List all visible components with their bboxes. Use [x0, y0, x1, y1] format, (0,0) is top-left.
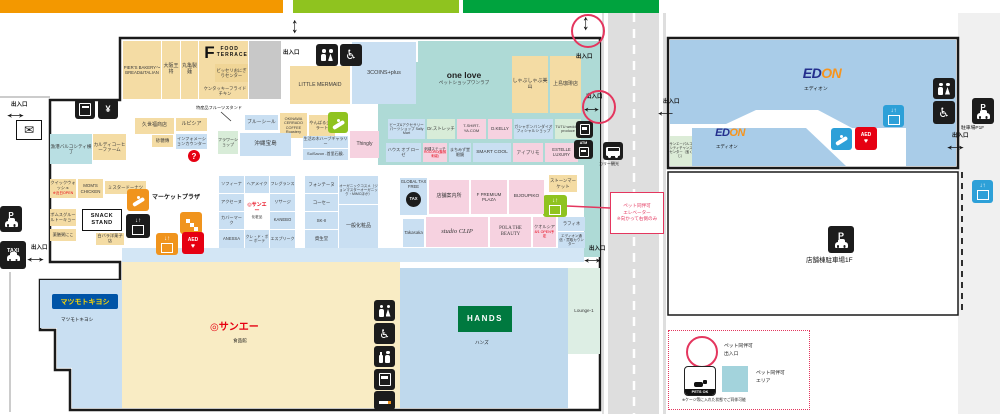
hands-logo-text: HANDS: [467, 314, 503, 323]
atm-icon: ¥: [98, 99, 118, 119]
store-okinawa-takarajima: 沖縄宝島: [240, 133, 291, 156]
store-guide-counter: 店舗案内所: [429, 180, 469, 214]
entrance-arrow: ←: [654, 104, 678, 119]
label-text: 出入口: [724, 352, 738, 357]
store-kfc: ケンタッキーフライドチキン: [203, 84, 247, 98]
restroom-icon: [933, 78, 955, 99]
food-terrace-logo: F FOOD TERRACE: [204, 44, 242, 61]
store-label: GLOBAL TAX FREE: [400, 180, 427, 190]
store-f-premium-plaza: F PREMIUM PLAZA: [471, 180, 507, 214]
store-label: ANESSA: [223, 237, 240, 242]
label-text: 食品館: [233, 338, 247, 343]
chance-center: サンエーパルコシティチャンスセンター（宝くじ）: [669, 137, 693, 165]
store-raffine: ラフィネ: [558, 217, 585, 231]
store-label: F PREMIUM PLAZA: [471, 192, 507, 202]
legend-note: ※ケージ等に入れた状態でご同伴可能: [682, 398, 746, 402]
store-lounge: Lounge-1: [568, 268, 600, 354]
information-counter: インフォメーションカウンター: [176, 134, 207, 149]
store-kuzefuku: 久世福商店: [135, 118, 174, 134]
store-label: ブルーシール: [247, 120, 276, 126]
store-note: 8/1 OPEN予定: [533, 230, 556, 238]
restroom-icon: [374, 300, 395, 321]
cosme-cledepeau: クレ・ド・ポー ボーテ: [245, 230, 269, 248]
mall-floor-map: PIER'S BAKERY～BREAD&ITALIAN 大阪王将 丸亀製麺 F …: [0, 0, 1000, 414]
matsukiyo-logo-text: マツモトキヨシ: [61, 297, 110, 307]
parking-icon: P: [828, 226, 854, 253]
cosme-general: 一般化粧品: [339, 205, 378, 248]
store-label: 砂糖傳: [156, 138, 169, 143]
store-label: インフォメーションカウンター: [176, 137, 207, 147]
cosme-organic: オーガニックコスメ（ジョンマスターオーガニック・MIMCほか）: [339, 176, 378, 204]
store-label: BIJOUPIKO: [514, 194, 540, 200]
cosme-kose: コーセー: [305, 194, 338, 211]
store-pola: POLA THE BEAUTY: [490, 217, 531, 247]
store-label: MOM'S CHICKEN: [78, 183, 103, 193]
store-label: 久世福商店: [142, 123, 167, 129]
aed-icon: AED♥: [855, 127, 877, 150]
store-label: Dr.ストレッチ: [427, 126, 455, 131]
store-machimizu-glasses: まちみず堂眼鏡: [449, 143, 471, 162]
restroom-icon: [316, 44, 338, 66]
service-counter-icon: [374, 369, 395, 390]
top-bar-orange: [0, 0, 283, 13]
dog-glyph: [694, 380, 707, 389]
store-suisavon: SuiSavon -首里石鹸-: [303, 149, 348, 160]
store-label: クイックウォッシュ: [50, 181, 76, 191]
store-seikatsunoki: 生活の木ハーブギャラリー: [303, 136, 348, 148]
store-label: フレグランス: [271, 182, 295, 187]
label-text: エディオン: [804, 87, 828, 92]
entrance-label: 出入口: [576, 54, 593, 60]
store-label: 大阪王将: [162, 64, 180, 76]
store-parking-label: 店舗棟駐車場1F: [806, 257, 853, 264]
store-label: しゃぶしゃぶ美山: [512, 79, 548, 91]
store-label: ルピシア: [181, 122, 201, 128]
store-label: ビーズ&アクセサリーパーツショップ Sally Mart: [388, 123, 425, 136]
store-label: ハウス オブ ローゼ: [386, 148, 421, 158]
store-label: アイプリモ: [517, 150, 540, 155]
store-label: リサージ: [274, 200, 291, 205]
parking-p1f-label: 駐車場P1F: [961, 126, 984, 131]
sanei-logo: ◎サンエー: [210, 322, 259, 333]
tax-glyph: TAX: [409, 197, 417, 202]
store-kaldi: カルディコーヒーファーム: [93, 134, 126, 160]
store-label: 漁港バルコシティ横丁: [50, 144, 92, 155]
cosme-acseine: アクセーヌ: [219, 194, 244, 211]
store-label: SMART COOL: [476, 150, 508, 156]
store-gashapon-bandai: ガシャポンバンダイオフィシャルショップ: [514, 119, 553, 139]
wheelchair-icon: ♿: [933, 101, 955, 124]
ticket-machine-icon: [75, 99, 95, 119]
legend-pet-entrance-label: ペット同伴可 出入口: [724, 343, 753, 358]
label-text: ※ケージ等に入れた状態でご同伴可能: [682, 398, 746, 402]
bus-stop-icon: [603, 142, 623, 160]
edion-logo: EDON: [706, 124, 754, 142]
store-label: カルディコーヒーファーム: [93, 142, 126, 153]
one-love-sub: ペットショップワンラブ: [439, 80, 490, 85]
store-house-of-rose: ハウス オブ ローゼ: [386, 143, 421, 162]
store-note: ROCORO(機械刺繍): [423, 151, 447, 159]
aed-icon: AED♥: [182, 232, 204, 254]
store-label: オーガニックコスメ（ジョンマスターオーガニック・MIMCほか）: [339, 184, 378, 196]
cosme-covermark: カバーマーク: [219, 212, 244, 229]
parking-icon: P: [0, 206, 22, 232]
post-icon: ✉: [16, 120, 42, 140]
cosme-kanebo: KANEBO: [270, 212, 295, 229]
edion-caption: エディオン: [804, 87, 828, 92]
label-text: 駐車場P1F: [961, 126, 984, 131]
escalator-icon: [328, 112, 348, 133]
store-marugame-seimen: 丸亀製麺: [181, 41, 198, 99]
store-lupicia: ルピシア: [176, 118, 207, 131]
food-terrace-name: FOOD TERRACE: [217, 47, 243, 59]
store-iprimo: アイプリモ: [513, 143, 543, 162]
store-moms-chicken: MOM'S CHICKEN: [78, 179, 103, 198]
ticket-machine-icon: [576, 121, 593, 138]
matsukiyo-caption: マツモトキヨシ: [61, 317, 93, 322]
store-studio-clip: studio CLIP: [426, 217, 488, 247]
entrance-arrow: ↔: [2, 106, 29, 121]
store-sally-mart: ビーズ&アクセサリーパーツショップ Sally Mart: [388, 119, 425, 139]
store-bisseri-onigiri: ビッセリおにぎりセンター: [215, 64, 248, 82]
store-label: PIER'S BAKERY～BREAD&ITALIAN: [123, 65, 161, 75]
store-label: T-SHIRT-YA.COM: [457, 124, 486, 133]
store-label: ポムスグルールトーキョー: [50, 213, 76, 223]
cosme-skii: SK-II: [305, 212, 338, 229]
store-label: ソフィーナ: [221, 182, 242, 187]
bus-stop-label: カリー観光: [599, 162, 619, 166]
sanei-food-caption: 食品館: [233, 338, 247, 343]
store-gyoko-bar: 漁港バルコシティ横丁: [50, 134, 92, 164]
sanei-cosme-logo: ◎サンエー 化粧品: [245, 194, 269, 229]
store-label: 丸亀製麺: [181, 64, 198, 76]
elevator-icon: ↓↑: [126, 214, 150, 238]
edion-counter: エディオン通信・買取カウンター: [558, 232, 585, 248]
pet-elevator-icon: ↓↑: [543, 195, 567, 217]
label-text: ペット同伴可: [756, 371, 785, 376]
store-poms-gurule: ポムスグルールトーキョー: [50, 209, 76, 226]
edion-logo-ed: ED: [803, 65, 821, 81]
store-label: Lounge-1: [574, 308, 593, 313]
stairs-icon: [180, 212, 202, 234]
edion-logo-on: ON: [729, 127, 745, 139]
store-label: ヘアメイク: [247, 182, 268, 187]
cosme-anessa: ANESSA: [219, 230, 244, 248]
pet-entrance-sample: [686, 336, 718, 368]
store-label: 薬膳粥にこ: [53, 233, 74, 238]
entrance-arrow: ↔: [22, 250, 49, 265]
wheelchair-icon: ♿: [340, 44, 362, 66]
pets-ok-text: PETS OK: [685, 389, 715, 395]
store-label: 店舗案内所: [436, 194, 461, 200]
top-bar-light-green: [293, 0, 459, 13]
label-text: エディオン: [716, 144, 738, 149]
label-text: マーケットプラザ: [152, 195, 200, 201]
smoking-area-icon: [374, 391, 395, 410]
pets-ok-icon: PETS OK: [684, 366, 716, 396]
store-label: ガシャポンバンダイオフィシャルショップ: [514, 125, 553, 134]
note-line: ※向かって右側のみ: [617, 216, 657, 223]
entrance-arrow: ↔: [580, 100, 604, 115]
store-global-tax-free: GLOBAL TAX FREE TAX: [400, 178, 427, 215]
store-label: studio CLIP: [441, 228, 473, 236]
store-label: フォンテーヌ: [308, 182, 334, 187]
fruit-stand-label: 特産品フルーツスタンド: [196, 106, 242, 111]
store-label: ラフィネ: [563, 221, 580, 226]
store-label: SuiSavon -首里石鹸-: [307, 152, 344, 157]
store-label: 白バラ洋菓子店: [96, 234, 124, 244]
store-label: 3COINS+plus: [367, 70, 401, 76]
store-tshirtya: T-SHIRT-YA.COM: [457, 119, 486, 139]
store-label: LITTLE MERMAID: [299, 82, 342, 88]
store-label: D.KELLY: [491, 126, 509, 131]
store-sanei-food-area: [122, 262, 400, 408]
store-quolcia: クオルシア 8/1 OPEN予定: [533, 217, 556, 247]
label-text: 店舗棟駐車場1F: [806, 257, 853, 264]
sanei-food-logo: ◎サンエー: [210, 322, 259, 333]
label-text: 出入口: [576, 54, 593, 60]
market-plaza-label: マーケットプラザ: [152, 195, 200, 202]
atm-glyph: ATM: [580, 142, 588, 146]
store-label: アクセーヌ: [221, 200, 242, 205]
store-osaka-ohsho: 大阪王将: [162, 41, 180, 99]
cosme-lissage: リサージ: [270, 194, 295, 211]
entrance-arrow: ↕: [582, 11, 590, 34]
label-text: 出入口: [283, 50, 300, 56]
store-ueshima-coffee: 上島珈琲店: [550, 56, 581, 113]
hands-caption: ハンズ: [475, 340, 489, 345]
store-label: 資生堂: [315, 236, 328, 241]
escalator-icon: [127, 189, 149, 211]
cosme-fontaine: フォンテーヌ: [305, 176, 338, 193]
store-yakuzen-kayu: 薬膳粥にこ: [50, 229, 76, 241]
store-stone-market: ストーンマーケット: [549, 175, 577, 192]
store-label: カバーマーク: [219, 216, 244, 226]
legend-pet-area-label: ペット同伴可 エリア: [756, 370, 785, 385]
store-label: ストーンマーケット: [549, 178, 577, 188]
elevator-icon: ↓↑: [972, 180, 993, 203]
information-icon: ?: [188, 150, 200, 162]
store-quick-wash: クイックウォッシュ ※近日OPEN: [50, 179, 76, 198]
store-bijoupiko: BIJOUPIKO: [509, 180, 544, 214]
cosme-esprique: エスプリーク: [270, 230, 295, 248]
store-label: SK-II: [317, 218, 327, 223]
store-thingly: Thingly: [350, 131, 379, 158]
store-label: サンエーパルコシティチャンスセンター（宝くじ）: [669, 143, 693, 159]
question-glyph: ?: [192, 152, 197, 161]
hands-logo: HANDS: [458, 306, 512, 332]
store-takasaka: Takasaka: [403, 219, 424, 247]
sanei-logo: ◎サンエー: [245, 203, 269, 215]
store-shabushabu-miyama: しゃぶしゃぶ美山: [512, 56, 548, 113]
store-shishu-stitch: 刺繍ステッチ ROCORO(機械刺繍): [423, 143, 447, 162]
store-label: POLA THE BEAUTY: [490, 226, 531, 237]
baby-room-icon: [374, 346, 395, 367]
entrance-arrow: ↔: [579, 251, 606, 266]
wheelchair-icon: ♿: [374, 323, 395, 344]
escalator-icon: [831, 128, 852, 150]
vacant-block: [249, 41, 281, 99]
matsukiyo-logo: マツモトキヨシ: [52, 294, 118, 309]
store-piers-bakery: PIER'S BAKERY～BREAD&ITALIAN: [123, 41, 161, 99]
store-blue-seal: ブルーシール: [245, 115, 278, 130]
pet-elevator-note: ペット同伴可 エレベーター ※向かって右側のみ: [610, 192, 664, 234]
store-sato-den: 砂糖傳: [152, 135, 173, 147]
store-label: 一般化粧品: [346, 224, 371, 230]
store-label: エディオン通信・買取カウンター: [558, 234, 585, 246]
edion-logo: EDON: [792, 62, 852, 84]
tax-free-icon: TAX: [406, 192, 421, 207]
label-text: カリー観光: [599, 161, 619, 166]
elevator-icon: ↓↑: [156, 233, 178, 255]
store-little-mermaid: LITTLE MERMAID: [290, 66, 350, 104]
store-label: 特産品フルーツスタンド: [196, 105, 242, 110]
store-dr-stretch: Dr.ストレッチ: [427, 119, 455, 139]
store-flower-shop: フラワーショップ: [218, 131, 238, 154]
top-bar-green: [463, 0, 659, 13]
entrance-arrow: ↔: [942, 138, 969, 153]
store-label: コーセー: [313, 200, 331, 205]
store-label: クレ・ド・ポー ボーテ: [245, 235, 269, 244]
store-smart-cool: SMART COOL: [473, 143, 511, 162]
store-label: ケンタッキーフライドチキン: [203, 86, 247, 96]
store-label: ビッセリおにぎりセンター: [215, 68, 248, 78]
cosme-hairmake: ヘアメイク: [245, 176, 269, 193]
label-text: エリア: [756, 379, 770, 384]
pet-area-sample: [722, 366, 748, 392]
store-label: KANEBO: [274, 218, 291, 223]
store-dkelly: D.KELLY: [488, 119, 512, 139]
edion-logo-on: ON: [821, 65, 841, 81]
store-label: 生活の木ハーブギャラリー: [303, 137, 348, 146]
cosme-sofina: ソフィーナ: [219, 176, 244, 193]
entrance-arrow: ↕: [291, 14, 299, 37]
edion-caption: エディオン: [716, 145, 738, 150]
store-label: 上島珈琲店: [553, 82, 578, 88]
cosme-shiseido: 資生堂: [305, 230, 338, 248]
label-text: ペット同伴可: [724, 344, 753, 349]
store-label: フラワーショップ: [218, 138, 238, 147]
cosme-fragrance: フレグランス: [270, 176, 295, 193]
atm-icon: ATM: [574, 140, 593, 159]
store-label: Takasaka: [404, 230, 423, 235]
elevator-icon: ↓↑: [883, 105, 904, 127]
store-label: OKINAWA CERRADO COFFEE Roastery: [280, 117, 307, 135]
store-label: Thingly: [356, 142, 372, 148]
edion-logo-ed: ED: [715, 127, 729, 139]
store-label: まちみず堂眼鏡: [449, 148, 471, 157]
sanei-caption: 化粧品: [252, 215, 263, 219]
label-text: ハンズ: [475, 340, 489, 345]
store-snack-stand: SNACK STAND: [82, 209, 122, 231]
store-label: 沖縄宝島: [254, 141, 276, 148]
one-love-logo: one love: [447, 70, 481, 80]
pet-area-zone: [584, 165, 600, 257]
store-hands-area: [400, 268, 568, 408]
store-note: ※近日OPEN: [53, 191, 73, 195]
store-shirobara: 白バラ洋菓子店: [96, 233, 124, 245]
note-line: ペット同伴可: [623, 203, 651, 210]
entrance-label: 出入口: [283, 50, 300, 56]
label-text: マツモトキヨシ: [61, 317, 93, 322]
store-label: SNACK STAND: [83, 213, 121, 226]
food-terrace-f: F: [204, 44, 214, 61]
store-one-love: one love ペットショップワンラブ: [420, 41, 508, 114]
parking-icon: P: [972, 98, 994, 124]
store-label: エスプリーク: [271, 237, 295, 242]
